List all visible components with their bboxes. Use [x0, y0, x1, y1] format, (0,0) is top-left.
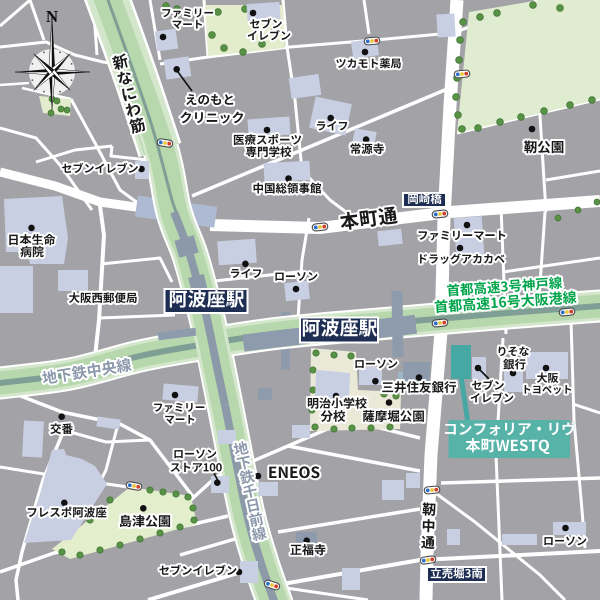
svg-text:N: N — [46, 7, 59, 26]
